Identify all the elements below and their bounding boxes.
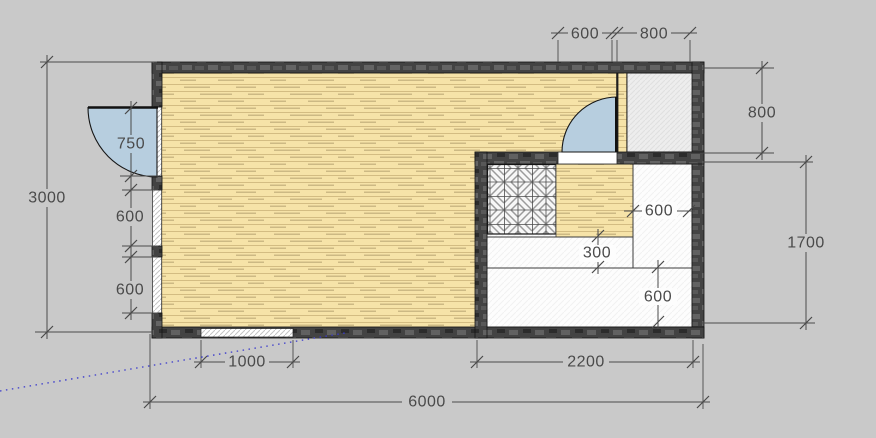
right-room-wood-area <box>556 164 633 237</box>
left-wall-stub-mid2 <box>152 246 162 257</box>
interior-wall-vertical <box>475 152 487 338</box>
dim-label-counter-step: 300 <box>583 245 611 262</box>
dim-label-right-room-height: 1700 <box>787 235 825 252</box>
herringbone-tile-area <box>488 165 557 235</box>
dim-label-closet-height: 800 <box>748 105 776 122</box>
dim-label-left-total: 3000 <box>28 190 66 207</box>
bottom-window <box>201 329 293 338</box>
floor-plan-viewport: 600 800 3000 750 600 600 <box>0 0 876 438</box>
door-threshold <box>558 152 617 164</box>
dim-label-right-room-width: 2200 <box>567 354 605 371</box>
closet-partition-wall <box>619 73 627 152</box>
dim-label-total-width: 6000 <box>408 394 446 411</box>
top-wall <box>152 62 704 73</box>
left-wall-stub-mid1 <box>152 176 162 190</box>
left-wall-stub-top <box>152 62 162 107</box>
dim-label-left-window-lower: 600 <box>116 282 144 299</box>
dim-label-counter-right: 600 <box>645 203 673 220</box>
dim-label-left-window-upper: 600 <box>116 209 144 226</box>
dim-label-top-door: 600 <box>571 26 599 43</box>
floor-plan-canvas: 600 800 3000 750 600 600 <box>0 0 876 438</box>
closet-floor <box>627 73 693 152</box>
building <box>88 62 704 338</box>
dim-label-counter-bottom: 600 <box>644 289 672 306</box>
dim-label-top-closet: 800 <box>640 26 668 43</box>
right-wall <box>692 62 704 338</box>
dim-label-bottom-window: 1000 <box>228 354 266 371</box>
dim-label-left-door: 750 <box>117 136 145 153</box>
left-wall-stub-bottom <box>152 313 162 338</box>
